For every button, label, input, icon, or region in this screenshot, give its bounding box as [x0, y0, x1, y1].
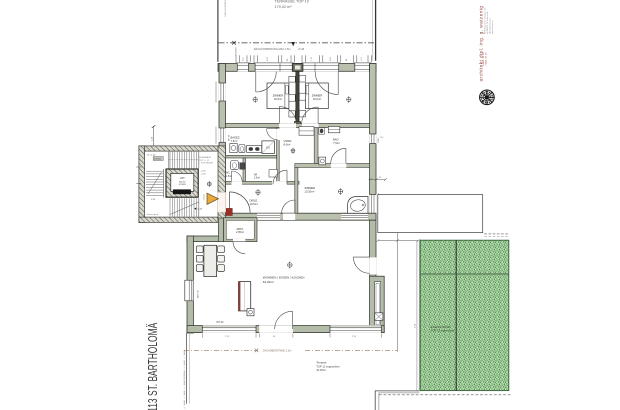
svg-text:DACHÜBERSTAND 1,5m: DACHÜBERSTAND 1,5m: [263, 349, 292, 352]
svg-text:8,0m²: 8,0m²: [284, 142, 291, 146]
svg-text:DIELE: DIELE: [250, 199, 258, 203]
svg-text:+4,35: +4,35: [197, 209, 203, 211]
svg-text:ZIMMER: ZIMMER: [273, 93, 284, 97]
svg-text:WOHNHAUS: WOHNHAUS: [199, 156, 212, 159]
svg-text:1,5m²: 1,5m²: [226, 175, 232, 178]
svg-text:www.architekt.at: www.architekt.at: [491, 20, 494, 34]
svg-text:TERRASSE TOP 10: TERRASSE TOP 10: [275, 0, 309, 3]
svg-text:EIGENGARTEN: EIGENGARTEN: [431, 325, 451, 329]
svg-text:175,04: 175,04: [154, 159, 161, 161]
svg-text:AR: AR: [254, 173, 258, 176]
svg-text:+2,62: +2,62: [201, 171, 207, 173]
svg-text:170,02 m²: 170,02 m²: [275, 5, 293, 9]
svg-text:VORR.: VORR.: [284, 139, 293, 143]
svg-text:8 PERS: 8 PERS: [179, 184, 186, 186]
svg-text:2,0m²: 2,0m²: [254, 177, 260, 180]
svg-text:TOP 12 zugeordnet: TOP 12 zugeordnet: [431, 328, 455, 332]
svg-text:Terrasse: Terrasse: [316, 361, 327, 365]
svg-text:7,5m²: 7,5m²: [231, 139, 238, 143]
svg-text:175,04: 175,04: [204, 193, 206, 200]
svg-text:BRH 90: BRH 90: [197, 290, 199, 298]
svg-text:44,25m²: 44,25m²: [316, 368, 326, 372]
svg-text:+ 3 WOHNUNG: + 3 WOHNUNG: [199, 162, 214, 164]
svg-text:ZIMMER: ZIMMER: [305, 186, 316, 190]
svg-text:7,5m²: 7,5m²: [333, 141, 340, 145]
svg-text:113 ST. BARTHOLOMÄ: 113 ST. BARTHOLOMÄ: [145, 323, 160, 410]
svg-text:13,50m²: 13,50m²: [305, 190, 315, 194]
svg-text:+6,48: +6,48: [298, 47, 305, 51]
svg-text:architekt dipl. ing. g. watzen: architekt dipl. ing. g. watzenig: [478, 6, 483, 82]
svg-text:ZIMMER: ZIMMER: [312, 93, 323, 97]
svg-text:WC: WC: [226, 173, 230, 175]
svg-text:t 0463 / 51 15: t 0463 / 51 15: [482, 52, 485, 66]
svg-text:BADEZ.: BADEZ.: [231, 136, 241, 140]
svg-text:2,05m²: 2,05m²: [236, 230, 244, 234]
svg-text:Hauseingang: Hauseingang: [147, 214, 159, 216]
svg-text:PH 90: PH 90: [217, 321, 225, 324]
svg-text:DACHVORSPRUNG MAX 1,5m: DACHVORSPRUNG MAX 1,5m: [254, 47, 291, 51]
svg-text:630 KG: 630 KG: [179, 181, 186, 183]
svg-text:ABST.: ABST.: [236, 227, 243, 231]
svg-text:64,03m²: 64,03m²: [263, 280, 274, 284]
svg-text:10,5m²: 10,5m²: [250, 202, 258, 206]
svg-text:BAD: BAD: [333, 138, 339, 142]
svg-text:f 0463 / 51 16: f 0463 / 51 16: [486, 52, 488, 66]
svg-text:DACHVORSPRUNG: DACHVORSPRUNG: [224, 0, 227, 17]
svg-text:16,5m²: 16,5m²: [274, 97, 282, 101]
svg-text:TOP 12 zugeordnet: TOP 12 zugeordnet: [316, 364, 340, 368]
svg-text:DU: DU: [266, 147, 270, 150]
svg-text:16,0m²: 16,0m²: [313, 97, 321, 101]
svg-text:+1,35: +1,35: [201, 173, 207, 175]
svg-text:WOHNEN / ESSEN / KOCHEN: WOHNEN / ESSEN / KOCHEN: [263, 275, 305, 279]
svg-text:N +1,20: N +1,20: [148, 155, 157, 157]
svg-text:LIFT: LIFT: [180, 177, 185, 180]
